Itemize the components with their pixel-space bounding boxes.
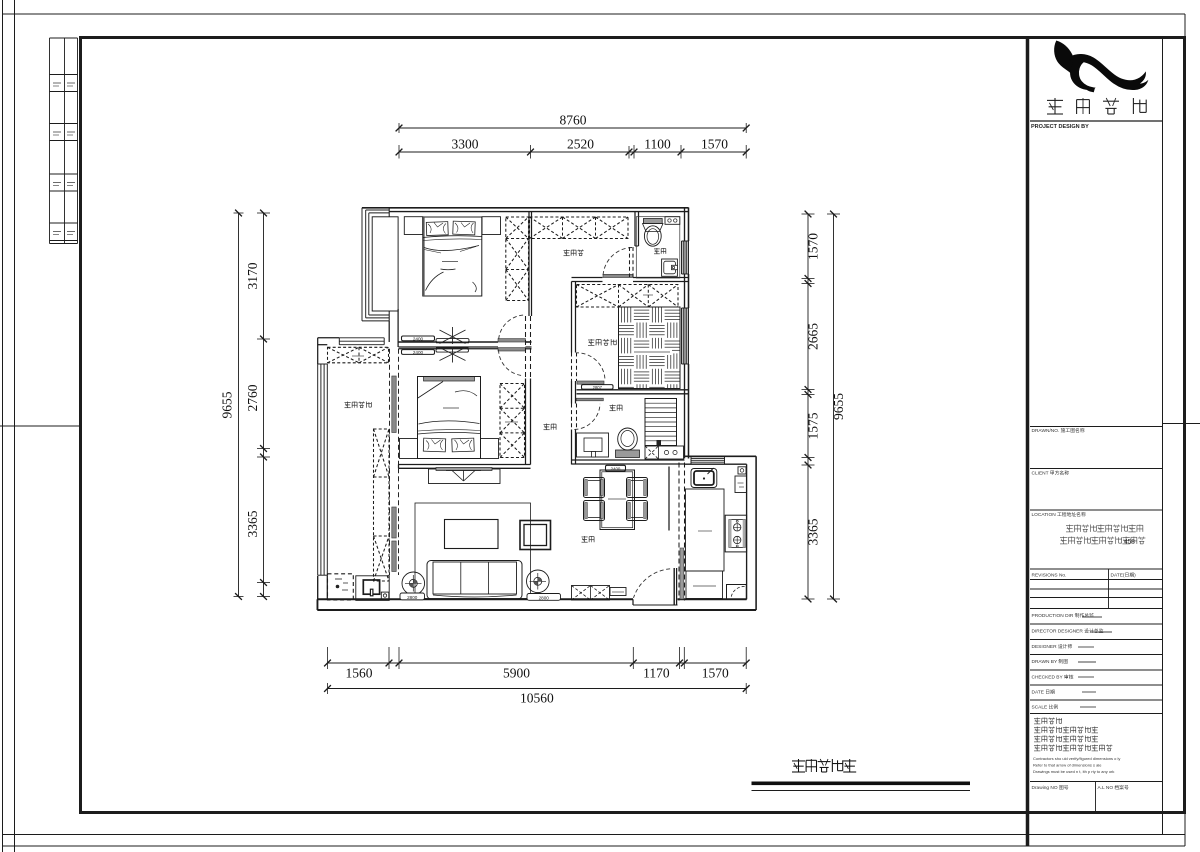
svg-text:1575: 1575 bbox=[806, 412, 821, 439]
svg-text:2400: 2400 bbox=[413, 336, 424, 341]
svg-text:10560: 10560 bbox=[520, 691, 554, 706]
svg-text:2665: 2665 bbox=[806, 323, 821, 350]
svg-text:1570: 1570 bbox=[702, 666, 729, 681]
svg-text:Drawings must be used n t, it: Drawings must be used n t, ith p rty to … bbox=[1033, 769, 1114, 774]
svg-text:1170: 1170 bbox=[643, 666, 670, 681]
svg-text:DRAWN BY 制图: DRAWN BY 制图 bbox=[1032, 658, 1069, 665]
svg-text:DRAWN/NO. 施工图名称: DRAWN/NO. 施工图名称 bbox=[1032, 427, 1085, 434]
svg-text:2520: 2520 bbox=[567, 137, 594, 152]
svg-text:5900: 5900 bbox=[503, 666, 530, 681]
svg-text:PROJECT DESIGN BY: PROJECT DESIGN BY bbox=[1031, 124, 1089, 130]
svg-text:CLIENT 甲方名称: CLIENT 甲方名称 bbox=[1032, 470, 1070, 477]
svg-text:2800: 2800 bbox=[539, 595, 550, 600]
svg-text:1100: 1100 bbox=[644, 137, 671, 152]
svg-text:3365: 3365 bbox=[806, 518, 821, 545]
svg-text:9655: 9655 bbox=[220, 391, 235, 418]
svg-text:2400: 2400 bbox=[413, 350, 424, 355]
svg-text:REVISIONS No.: REVISIONS No. bbox=[1032, 573, 1067, 579]
svg-text:Contractors sho uld verify/fig: Contractors sho uld verify/figured dimen… bbox=[1033, 756, 1120, 761]
svg-text:Drawing NO 图号: Drawing NO 图号 bbox=[1032, 785, 1069, 791]
svg-text:DATE 日期: DATE 日期 bbox=[1032, 690, 1056, 696]
svg-text:8760: 8760 bbox=[560, 113, 587, 128]
svg-text:PRODUCTION DIR 制作总监: PRODUCTION DIR 制作总监 bbox=[1032, 612, 1095, 619]
svg-text:1570: 1570 bbox=[701, 137, 728, 152]
svg-text:3300: 3300 bbox=[452, 137, 479, 152]
svg-text:458: 458 bbox=[1124, 539, 1135, 546]
svg-text:2760: 2760 bbox=[245, 384, 260, 411]
svg-text:3170: 3170 bbox=[245, 262, 260, 289]
svg-text:2807: 2807 bbox=[593, 385, 603, 390]
svg-text:2400: 2400 bbox=[611, 467, 621, 472]
svg-text:1570: 1570 bbox=[806, 233, 821, 260]
svg-text:SCALE 比例: SCALE 比例 bbox=[1032, 704, 1059, 711]
svg-text:DIRECTOR DESIGNER 设计总监: DIRECTOR DESIGNER 设计总监 bbox=[1032, 628, 1104, 635]
svg-text:DESIGNER 设计师: DESIGNER 设计师 bbox=[1032, 643, 1073, 650]
svg-text:CHECKED BY 审核: CHECKED BY 审核 bbox=[1032, 674, 1074, 681]
svg-text:A.L NO 档案号: A.L NO 档案号 bbox=[1098, 784, 1129, 791]
svg-text:9655: 9655 bbox=[831, 393, 846, 420]
svg-text:DATE(日期): DATE(日期) bbox=[1111, 573, 1137, 579]
svg-text:LOCATION 工程地址名称: LOCATION 工程地址名称 bbox=[1032, 511, 1086, 518]
svg-text:1560: 1560 bbox=[346, 666, 373, 681]
svg-text:2800: 2800 bbox=[407, 595, 418, 600]
svg-text:Refer to that arrow of dimensi: Refer to that arrow of dimensions s ale bbox=[1033, 763, 1102, 768]
svg-text:3365: 3365 bbox=[245, 510, 260, 537]
